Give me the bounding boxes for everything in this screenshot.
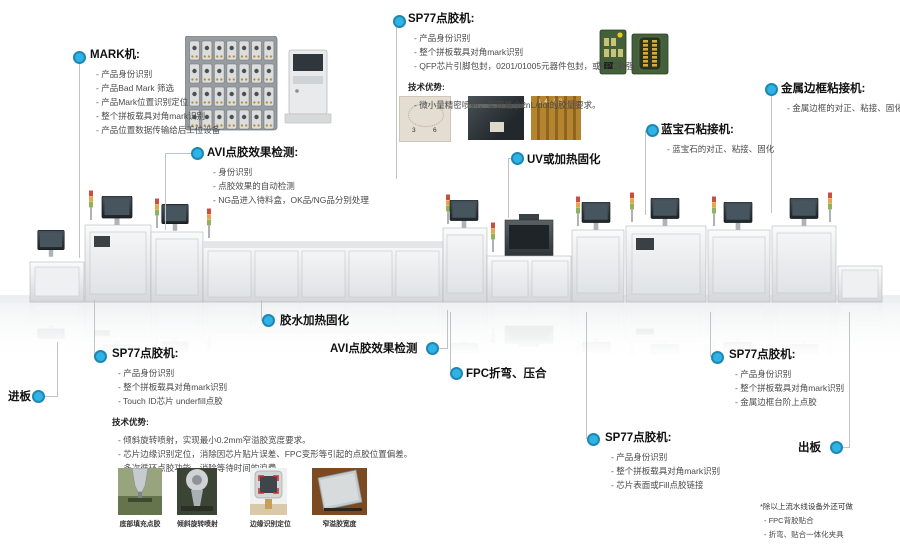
- callout-dot-mark: [73, 51, 86, 64]
- list-item: 金属边框台阶上点胶: [735, 395, 844, 409]
- list-item: 整个拼板载具对角mark识别: [118, 380, 412, 394]
- callout-glue-cure-label: 胶水加热固化: [280, 312, 349, 328]
- callout-dot-board-in: [32, 390, 45, 403]
- callout-dot-metal-frame: [765, 83, 778, 96]
- callout-list: 身份识别 点胶效果的自动检测 NG品进入待料盒，OK品/NG品分别处理: [207, 165, 369, 207]
- footnote-list: FPC背胶贴合 折弯、贴合一体化夹具: [760, 514, 853, 542]
- connector-fpc: [450, 312, 451, 370]
- callout-title: SP77点胶机:: [408, 10, 698, 26]
- callout-list: 产品身份识别 整个拼板载具对角mark识别 金属边框台阶上点胶: [729, 367, 844, 409]
- callout-title: SP77点胶机:: [605, 429, 720, 445]
- thumb-caption: 窄溢胶宽度: [312, 518, 367, 528]
- callout-dot-sapphire: [646, 124, 659, 137]
- list-item: 身份识别: [213, 165, 369, 179]
- list-item: 蓝宝石的对正、粘接、固化: [667, 142, 774, 156]
- callout-sp77-mid: SP77点胶机: 产品身份识别 整个拼板载具对角mark识别 芯片表面或Fill…: [605, 429, 720, 492]
- callout-title: SP77点胶机:: [729, 346, 844, 362]
- callout-dot-sp77-left: [94, 350, 107, 363]
- list-item: 产品Bad Mark 筛选: [96, 81, 220, 95]
- callout-title: MARK机:: [90, 46, 220, 62]
- list-item: 产品身份识别: [414, 31, 698, 45]
- callout-list: 金属边框的对正、粘接、固化: [781, 101, 900, 115]
- callout-dot-sp77-mid: [587, 433, 600, 446]
- thumb-caption: 边缘识别定位: [250, 518, 287, 528]
- callout-sp77-top: SP77点胶机: 产品身份识别 整个拼板载具对角mark识别 QFP芯片引脚包封…: [408, 10, 698, 112]
- connector-sp77-top: [396, 27, 397, 179]
- list-item: 产品身份识别: [96, 67, 220, 81]
- connector-sp77-right: [710, 312, 711, 357]
- list-item: 整个拼板载具对角mark识别: [735, 381, 844, 395]
- connector-avi-top-v: [165, 153, 166, 230]
- list-item: 芯片表面或Fill点胶链接: [611, 478, 720, 492]
- callout-title: SP77点胶机:: [112, 345, 412, 361]
- callout-uv-label: UV或加热固化: [527, 151, 600, 167]
- tech-title: 技术优势:: [112, 416, 412, 428]
- list-item: 产品身份识别: [611, 450, 720, 464]
- connector-board-out-v: [849, 312, 850, 447]
- list-item: 金属边框的对正、粘接、固化: [787, 101, 900, 115]
- list-item: 产品位置数据传输给后工位设备: [96, 123, 220, 137]
- footnote-title: *除以上流水线设备外还可做: [760, 500, 853, 514]
- callout-fpc-label: FPC折弯、压合: [466, 365, 547, 381]
- callout-board-out-label: 出板: [798, 439, 821, 455]
- callout-sp77-left: SP77点胶机: 产品身份识别 整个拼板载具对角mark识别 Touch ID芯…: [112, 345, 412, 475]
- callout-dot-glue-cure: [262, 314, 275, 327]
- photo-scale-mark: 3: [412, 127, 416, 134]
- list-item: 芯片边缘识别定位，消除因芯片贴片误差、FPC变形等引起的点胶位置偏差。: [118, 447, 412, 461]
- thumb-caption: 底部填充点胶: [118, 518, 162, 528]
- callout-title: 金属边框粘接机:: [781, 80, 900, 96]
- callout-sp77-right: SP77点胶机: 产品身份识别 整个拼板载具对角mark识别 金属边框台阶上点胶: [729, 346, 844, 409]
- tech-title: 技术优势:: [408, 81, 698, 93]
- callout-dot-avi-top: [191, 147, 204, 160]
- list-item: 整个拼板载具对角mark识别: [414, 45, 698, 59]
- thumb-narrow-glue-width: [312, 468, 367, 515]
- callout-dot-fpc: [450, 367, 463, 380]
- thumb-caption: 倾斜旋转喷射: [177, 518, 217, 528]
- callout-dot-uv: [511, 152, 524, 165]
- list-item: 产品Mark位置识别定位: [96, 95, 220, 109]
- list-item: 产品身份识别: [118, 366, 412, 380]
- thumb-edge-recognition: [250, 468, 287, 515]
- callout-dot-board-out: [830, 441, 843, 454]
- callout-list: 产品身份识别 整个拼板载具对角mark识别 QFP芯片引脚包封，0201/010…: [408, 31, 698, 73]
- photo-scale-mark: 6: [433, 127, 437, 134]
- connector-sp77-mid: [586, 312, 587, 439]
- list-item: 整个拼板载具对角mark识别: [96, 109, 220, 123]
- thumb-underfill-dispensing: [118, 468, 162, 515]
- callout-title: 蓝宝石粘接机:: [661, 121, 774, 137]
- list-item: 微小量精密喷射，实现最小2nL/dot的胶量要求。: [414, 98, 698, 112]
- list-item: Touch ID芯片 underfill点胶: [118, 394, 412, 408]
- list-item: 整个拼板载具对角mark识别: [611, 464, 720, 478]
- callout-list: 产品身份识别 产品Bad Mark 筛选 产品Mark位置识别定位 整个拼板载具…: [90, 67, 220, 137]
- connector-board-in-h: [44, 396, 58, 397]
- list-item: 点胶效果的自动检测: [213, 179, 369, 193]
- mark-machine-photo: [285, 50, 331, 123]
- callout-dot-sp77-top: [393, 15, 406, 28]
- connector-sapphire-v: [645, 130, 646, 215]
- callout-mark: MARK机: 产品身份识别 产品Bad Mark 筛选 产品Mark位置识别定位…: [90, 46, 220, 137]
- bright-spot: [490, 122, 504, 132]
- connector-mark: [79, 62, 80, 258]
- thumb-tilt-rotate-jetting: [177, 468, 217, 515]
- list-item: 倾斜旋转喷射，实现最小0.2mm窄溢胶宽度要求。: [118, 433, 412, 447]
- list-item: QFP芯片引脚包封，0201/01005元器件包封，或FPC补强: [414, 59, 698, 73]
- callout-avi-top: AVI点胶效果检测: 身份识别 点胶效果的自动检测 NG品进入待料盒，OK品/N…: [207, 144, 369, 207]
- callout-title: AVI点胶效果检测:: [207, 144, 369, 160]
- callout-list: 产品身份识别 整个拼板载具对角mark识别 芯片表面或Fill点胶链接: [605, 450, 720, 492]
- callout-sapphire: 蓝宝石粘接机: 蓝宝石的对正、粘接、固化: [661, 121, 774, 156]
- list-item: 折弯、贴合一体化夹具: [764, 528, 853, 542]
- callout-list: 产品身份识别 整个拼板载具对角mark识别 Touch ID芯片 underfi…: [112, 366, 412, 408]
- connector-avi-bottom-v: [447, 310, 448, 348]
- list-item: FPC背胶贴合: [764, 514, 853, 528]
- connector-uv-v: [508, 158, 509, 218]
- callout-metal-frame: 金属边框粘接机: 金属边框的对正、粘接、固化: [781, 80, 900, 115]
- callout-dot-sp77-right: [711, 351, 724, 364]
- connector-avi-bottom-h: [437, 348, 448, 349]
- connector-avi-top-h: [165, 153, 192, 154]
- list-item: 产品身份识别: [735, 367, 844, 381]
- connector-sp77-left: [94, 300, 95, 356]
- footnote: *除以上流水线设备外还可做 FPC背胶贴合 折弯、贴合一体化夹具: [760, 500, 853, 542]
- callout-board-in-label: 进板: [8, 388, 31, 404]
- callout-dot-avi-bottom: [426, 342, 439, 355]
- line-main: [30, 191, 882, 303]
- list-item: NG品进入待料盒，OK品/NG品分别处理: [213, 193, 369, 207]
- callout-list: 蓝宝石的对正、粘接、固化: [661, 142, 774, 156]
- connector-board-in-v: [57, 342, 58, 396]
- production-line-diagram: 3 6 L4 L2: [0, 0, 900, 557]
- tech-list: 微小量精密喷射，实现最小2nL/dot的胶量要求。: [408, 98, 698, 112]
